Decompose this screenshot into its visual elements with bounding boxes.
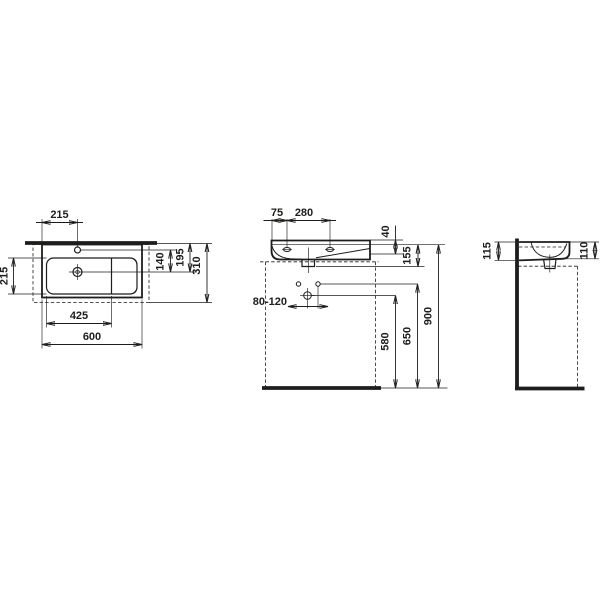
front-dim-trap-offset-label: 80-120: [253, 296, 287, 308]
front-dim-fixing-height-label: 650: [402, 327, 414, 345]
plan-dim-tap-to-drain-label: 140: [155, 252, 167, 270]
side-dim-front-height-label: 110: [579, 242, 591, 260]
basin-side-outline: [519, 242, 570, 260]
plan-dim-bowl-width-label: 425: [70, 310, 88, 322]
front-dim-basin-height-label: 155: [402, 246, 414, 264]
front-dim-edge-to-hole-label: 75: [271, 207, 283, 219]
plan-dim-tap-offset-label: 215: [50, 209, 68, 221]
front-dim-trap-height-label: 580: [380, 332, 392, 350]
front-dim-rim-height-label: 900: [423, 307, 435, 325]
plan-dim-rim-to-drain-label: 195: [175, 248, 187, 266]
front-view: 75 280 40 155 80-120 580 650 900: [253, 207, 448, 388]
front-dim-hole-spacing-label: 280: [295, 207, 313, 219]
plan-view: 215 215 140 195 310 425 600: [0, 209, 212, 349]
plan-dim-total-depth-label: 310: [191, 256, 203, 274]
front-dim-rim-to-shelf-label: 40: [380, 225, 392, 237]
basin-outline: [42, 245, 142, 298]
side-dim-back-height-label: 115: [482, 242, 494, 260]
wall-fixing-point-left: [296, 282, 300, 286]
drawing-canvas: 215 215 140 195 310 425 600: [0, 0, 600, 600]
plan-dim-bowl-depth-label: 215: [0, 267, 11, 285]
technical-drawing: 215 215 140 195 310 425 600: [0, 0, 600, 600]
plan-dim-total-width-label: 600: [83, 331, 101, 343]
tap-hole: [75, 247, 81, 253]
side-view: 115 110: [482, 239, 600, 391]
wall-fixing-point-right: [316, 282, 320, 286]
